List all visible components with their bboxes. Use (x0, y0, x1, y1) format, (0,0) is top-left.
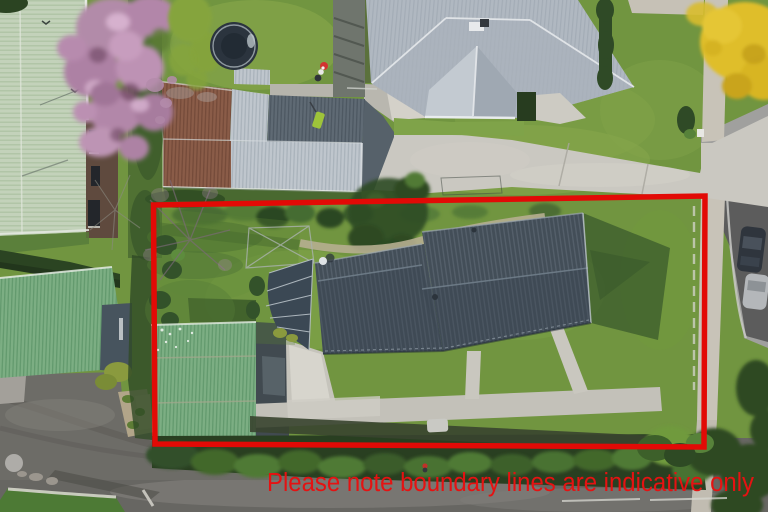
svg-text:Please note boundary lines are: Please note boundary lines are indicativ… (267, 469, 754, 497)
